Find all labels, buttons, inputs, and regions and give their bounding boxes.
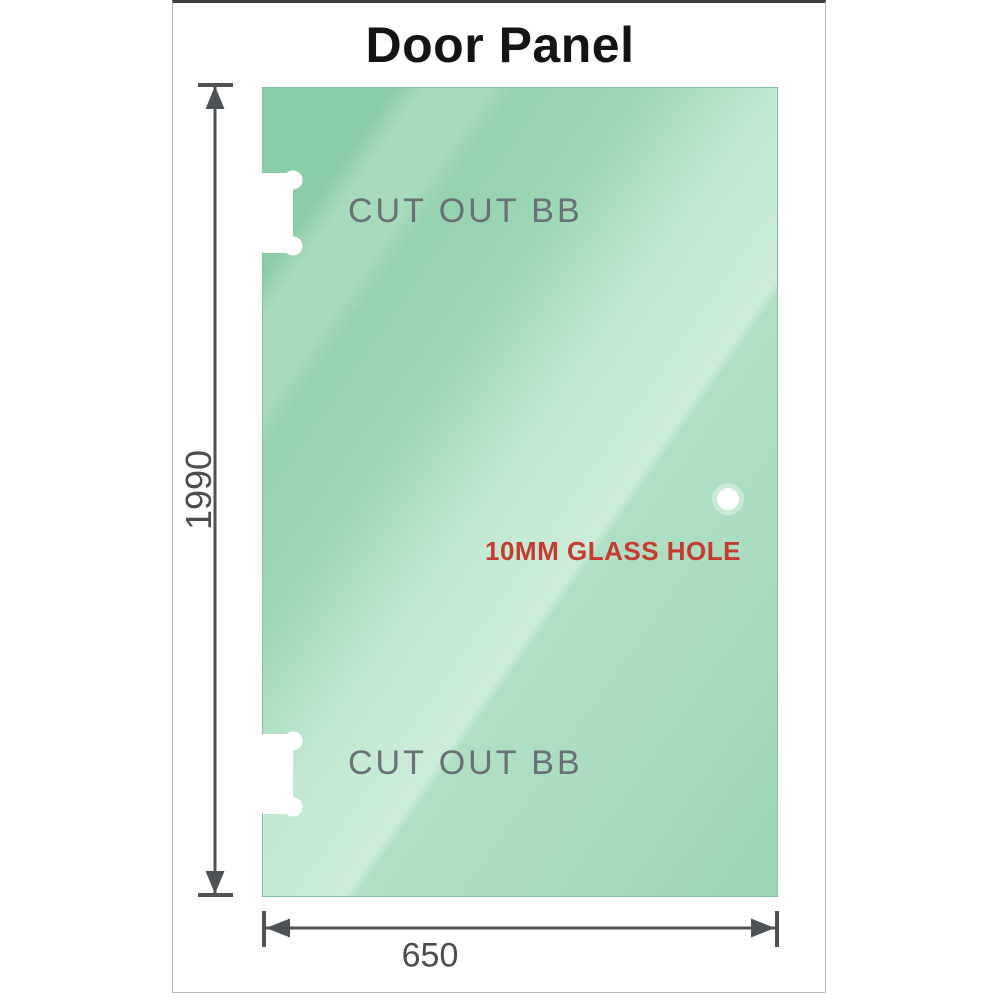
height-dimension-label: 1990	[178, 450, 220, 530]
dimension-line-horizontal	[266, 927, 775, 930]
diagram-title: Door Panel	[366, 16, 635, 74]
cutout-lobe-bottom	[284, 798, 303, 817]
glass-panel: CUT OUT BB CUT OUT BB 10MM GLASS HOLE	[262, 87, 778, 897]
hinge-cutout-bottom	[262, 730, 306, 818]
arrow-up-icon	[206, 86, 225, 109]
cutout-label-bottom: CUT OUT BB	[348, 744, 583, 783]
glass-hole-label: 10MM GLASS HOLE	[485, 536, 741, 567]
door-panel-diagram: Door Panel CUT OUT BB CUT OUT BB 10MM GL…	[0, 0, 1000, 1000]
glass-hole	[717, 488, 739, 510]
hinge-cutout-top	[262, 169, 306, 257]
dimension-cap-bottom	[198, 893, 233, 897]
dimension-cap-right	[775, 911, 779, 947]
arrow-right-icon	[751, 919, 775, 938]
width-dimension-label: 650	[402, 937, 459, 976]
arrow-left-icon	[266, 919, 290, 938]
dimension-cap-top	[198, 83, 233, 87]
cutout-lobe-top	[284, 732, 303, 751]
dimension-cap-left	[262, 911, 266, 947]
cutout-lobe-top	[284, 171, 303, 190]
cutout-label-top: CUT OUT BB	[348, 192, 583, 231]
cutout-lobe-bottom	[284, 237, 303, 256]
width-dimension	[255, 903, 790, 955]
arrow-down-icon	[206, 871, 225, 894]
